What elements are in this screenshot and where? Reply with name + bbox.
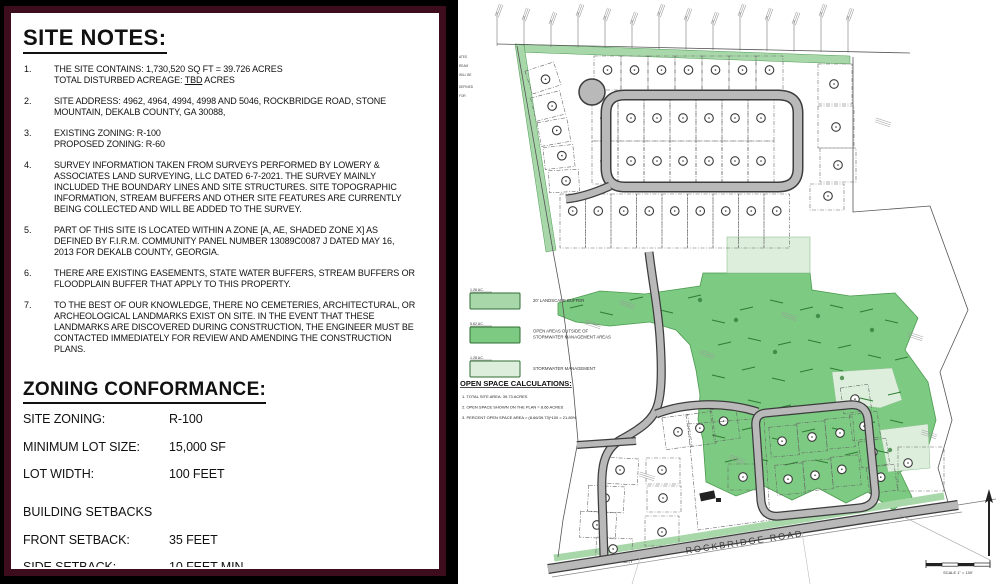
lot — [662, 194, 688, 248]
legend-area-label: 5.62 AC. — [470, 322, 484, 326]
top-loop-road — [566, 79, 798, 199]
spec-row: FRONT SETBACK:35 FEET — [23, 533, 435, 547]
clipped-text: ATES — [459, 55, 467, 59]
lot — [618, 99, 644, 141]
site-note-number: 5. — [21, 225, 54, 258]
clipped-text: REAM — [459, 64, 469, 68]
site-note-number: 1. — [21, 64, 54, 86]
site-note-text: SITE ADDRESS: 4962, 4964, 4994, 4998 AND… — [54, 96, 416, 118]
stormwater-area — [727, 237, 810, 273]
tick-label-hairlines — [684, 8, 692, 21]
zoning-rows: SITE ZONING:R-100MINIMUM LOT SIZE:15,000… — [21, 412, 435, 481]
lot — [548, 169, 579, 193]
legend-area-label: 1.26 AC. — [470, 288, 484, 292]
site-note-line: THE SITE CONTAINS: 1,730,520 SQ FT = 39.… — [54, 64, 416, 75]
lot — [748, 99, 774, 141]
existing-building — [716, 498, 721, 502]
tick-label-hairlines — [522, 8, 530, 21]
tick-label-hairlines — [819, 4, 827, 17]
lot — [618, 141, 644, 184]
site-note-line: EXISTING ZONING: R-100 — [54, 128, 416, 139]
legend-label: 20' LANDSCAPE BUFFER — [533, 298, 584, 303]
site-note-line: PROPOSED ZONING: R-60 — [54, 139, 416, 150]
spec-value: 100 FEET — [169, 467, 224, 481]
lot — [621, 56, 648, 90]
site-notes-list: 1.THE SITE CONTAINS: 1,730,520 SQ FT = 3… — [21, 64, 435, 355]
lot — [670, 99, 696, 141]
lot — [675, 56, 702, 90]
open-space-calcs-title: OPEN SPACE CALCULATIONS: — [460, 379, 572, 388]
lot — [648, 56, 675, 90]
lot — [696, 141, 722, 184]
spec-label: SIDE SETBACK: — [23, 560, 169, 567]
site-plan-map: ROCKBRIDGE ROAD ATESREAMWILL BEDEFINEDFO… — [458, 0, 996, 584]
tree-icon — [870, 328, 874, 332]
site-note-line: PART OF THIS SITE IS LOCATED WITHIN A ZO… — [54, 225, 416, 258]
legend-swatch — [470, 327, 520, 343]
lot — [729, 56, 756, 90]
open-space-calc-line: 1. TOTAL SITE AREA: 39.73 ACRES — [462, 394, 528, 399]
lot — [637, 194, 663, 248]
tree-icon — [698, 298, 702, 302]
open-space-calc-line: 3. PERCENT OPEN SPACE AREA = (8.66/39.73… — [462, 415, 577, 420]
open-space-calc-line: 2. OPEN SPACE SHOWN ON THE PLAN = 8.66 A… — [462, 405, 564, 410]
spec-row: LOT WIDTH:100 FEET — [23, 467, 435, 481]
zoning-conformance-title: ZONING CONFORMANCE: — [23, 379, 266, 404]
legend-label: STORMWATER MANAGEMENT AREAS — [533, 335, 611, 340]
site-note-line: TOTAL DISTURBED ACREAGE: TBD ACRES — [54, 75, 416, 86]
lot — [644, 141, 670, 184]
tree-icon — [773, 350, 777, 354]
sheet-content: SITE NOTES: 1.THE SITE CONTAINS: 1,730,5… — [21, 19, 435, 567]
site-note-line: TO THE BEST OF OUR KNOWLEDGE, THERE NO C… — [54, 300, 416, 355]
lot — [722, 141, 748, 184]
setback-rows: FRONT SETBACK:35 FEETSIDE SETBACK:10 FEE… — [21, 533, 435, 568]
tick-label-hairlines — [657, 4, 665, 17]
site-note-text: THE SITE CONTAINS: 1,730,520 SQ FT = 39.… — [54, 64, 416, 86]
callout-hairlines — [639, 472, 655, 481]
site-note-line: THERE ARE EXISTING EASEMENTS, STATE WATE… — [54, 268, 416, 290]
lot — [647, 486, 681, 512]
lot — [579, 511, 616, 539]
site-note: 2.SITE ADDRESS: 4962, 4964, 4994, 4998 A… — [21, 96, 435, 118]
lot — [531, 91, 566, 122]
tick-label-hairlines — [495, 4, 503, 17]
spec-row: SIDE SETBACK:10 FEET MIN. — [23, 560, 435, 567]
tick-label-hairlines — [603, 8, 611, 21]
site-note-text: THERE ARE EXISTING EASEMENTS, STATE WATE… — [54, 268, 416, 290]
legend-swatch — [470, 361, 520, 377]
site-note-line: SITE ADDRESS: 4962, 4964, 4994, 4998 AND… — [54, 96, 416, 118]
site-note: 4.SURVEY INFORMATION TAKEN FROM SURVEYS … — [21, 160, 435, 215]
page: SITE NOTES: 1.THE SITE CONTAINS: 1,730,5… — [0, 0, 996, 584]
tick-label-hairlines — [846, 8, 854, 21]
clipped-text: WILL BE — [459, 73, 471, 77]
clipped-text: FOR — [459, 94, 466, 98]
lot — [662, 414, 692, 449]
tick-label-hairlines — [549, 12, 557, 25]
scale-label: SCALE 1" = 100' — [943, 570, 973, 575]
legend-swatch — [470, 293, 520, 309]
tree-icon — [888, 448, 892, 452]
tick-label-hairlines — [738, 4, 746, 17]
clipped-text: DEFINED — [459, 85, 474, 89]
site-notes-sheet: SITE NOTES: 1.THE SITE CONTAINS: 1,730,5… — [0, 0, 458, 584]
tick-label-hairlines — [711, 12, 719, 25]
building-setbacks-title: BUILDING SETBACKS — [23, 505, 435, 519]
scale-bar — [926, 560, 990, 568]
spec-label: LOT WIDTH: — [23, 467, 169, 481]
spec-row: SITE ZONING:R-100 — [23, 412, 435, 426]
site-note-text: PART OF THIS SITE IS LOCATED WITHIN A ZO… — [54, 225, 416, 258]
lot — [543, 144, 575, 169]
legend-label: OPEN AREAS OUTSIDE OF — [533, 329, 589, 334]
north-arrow-icon — [985, 489, 993, 556]
lot — [611, 194, 637, 248]
site-note-number: 2. — [21, 96, 54, 118]
existing-building — [699, 490, 715, 501]
site-note-line: SURVEY INFORMATION TAKEN FROM SURVEYS PE… — [54, 160, 416, 215]
lot — [688, 194, 714, 248]
lot — [586, 194, 612, 248]
spec-label: SITE ZONING: — [23, 412, 169, 426]
spec-label: FRONT SETBACK: — [23, 533, 169, 547]
lot — [537, 118, 571, 147]
tree-icon — [840, 376, 844, 380]
open-space-calc-lines: 1. TOTAL SITE AREA: 39.73 ACRES2. OPEN S… — [462, 394, 577, 420]
lot — [818, 64, 852, 104]
lot — [644, 99, 670, 141]
site-note: 3.EXISTING ZONING: R-100PROPOSED ZONING:… — [21, 128, 435, 150]
site-note-number: 4. — [21, 160, 54, 215]
spec-value: R-100 — [169, 412, 203, 426]
lot — [670, 141, 696, 184]
site-note-number: 3. — [21, 128, 54, 150]
tree-icon — [734, 318, 738, 322]
lot — [702, 56, 729, 90]
landscape-buffer-west — [515, 44, 556, 252]
site-note-text: EXISTING ZONING: R-100PROPOSED ZONING: R… — [54, 128, 416, 150]
lot — [696, 99, 722, 141]
callout-hairlines — [875, 118, 891, 127]
lot — [810, 184, 844, 210]
spec-value: 35 FEET — [169, 533, 218, 547]
tick-label-hairlines — [630, 12, 638, 25]
tick-label-hairlines — [792, 12, 800, 25]
lot — [748, 141, 774, 184]
site-note-text: TO THE BEST OF OUR KNOWLEDGE, THERE NO C… — [54, 300, 416, 355]
lot — [820, 148, 856, 182]
spec-label: MINIMUM LOT SIZE: — [23, 440, 169, 454]
site-note-text: SURVEY INFORMATION TAKEN FROM SURVEYS PE… — [54, 160, 416, 215]
spec-row: MINIMUM LOT SIZE:15,000 SF — [23, 440, 435, 454]
legend-area-label: 1.28 AC. — [470, 356, 484, 360]
site-note: 6.THERE ARE EXISTING EASEMENTS, STATE WA… — [21, 268, 435, 290]
clipped-text-fragments: ATESREAMWILL BEDEFINEDFOR — [459, 55, 474, 98]
site-note-number: 7. — [21, 300, 54, 355]
site-note: 1.THE SITE CONTAINS: 1,730,520 SQ FT = 3… — [21, 64, 435, 86]
tree-icon — [816, 314, 820, 318]
spec-value: 15,000 SF — [169, 440, 226, 454]
lot — [722, 99, 748, 141]
lot — [818, 106, 854, 148]
tick-label-hairlines — [765, 8, 773, 21]
site-notes-title: SITE NOTES: — [23, 25, 167, 54]
tick-label-hairlines — [576, 4, 584, 17]
site-note: 5.PART OF THIS SITE IS LOCATED WITHIN A … — [21, 225, 435, 258]
spec-value: 10 FEET MIN. — [169, 560, 247, 567]
legend-label: STORMWATER MANAGEMENT — [533, 366, 596, 371]
lot — [646, 458, 680, 484]
site-note: 7.TO THE BEST OF OUR KNOWLEDGE, THERE NO… — [21, 300, 435, 355]
site-note-number: 6. — [21, 268, 54, 290]
landscape-buffer-top — [515, 44, 850, 64]
sheet-border: SITE NOTES: 1.THE SITE CONTAINS: 1,730,5… — [4, 6, 446, 576]
